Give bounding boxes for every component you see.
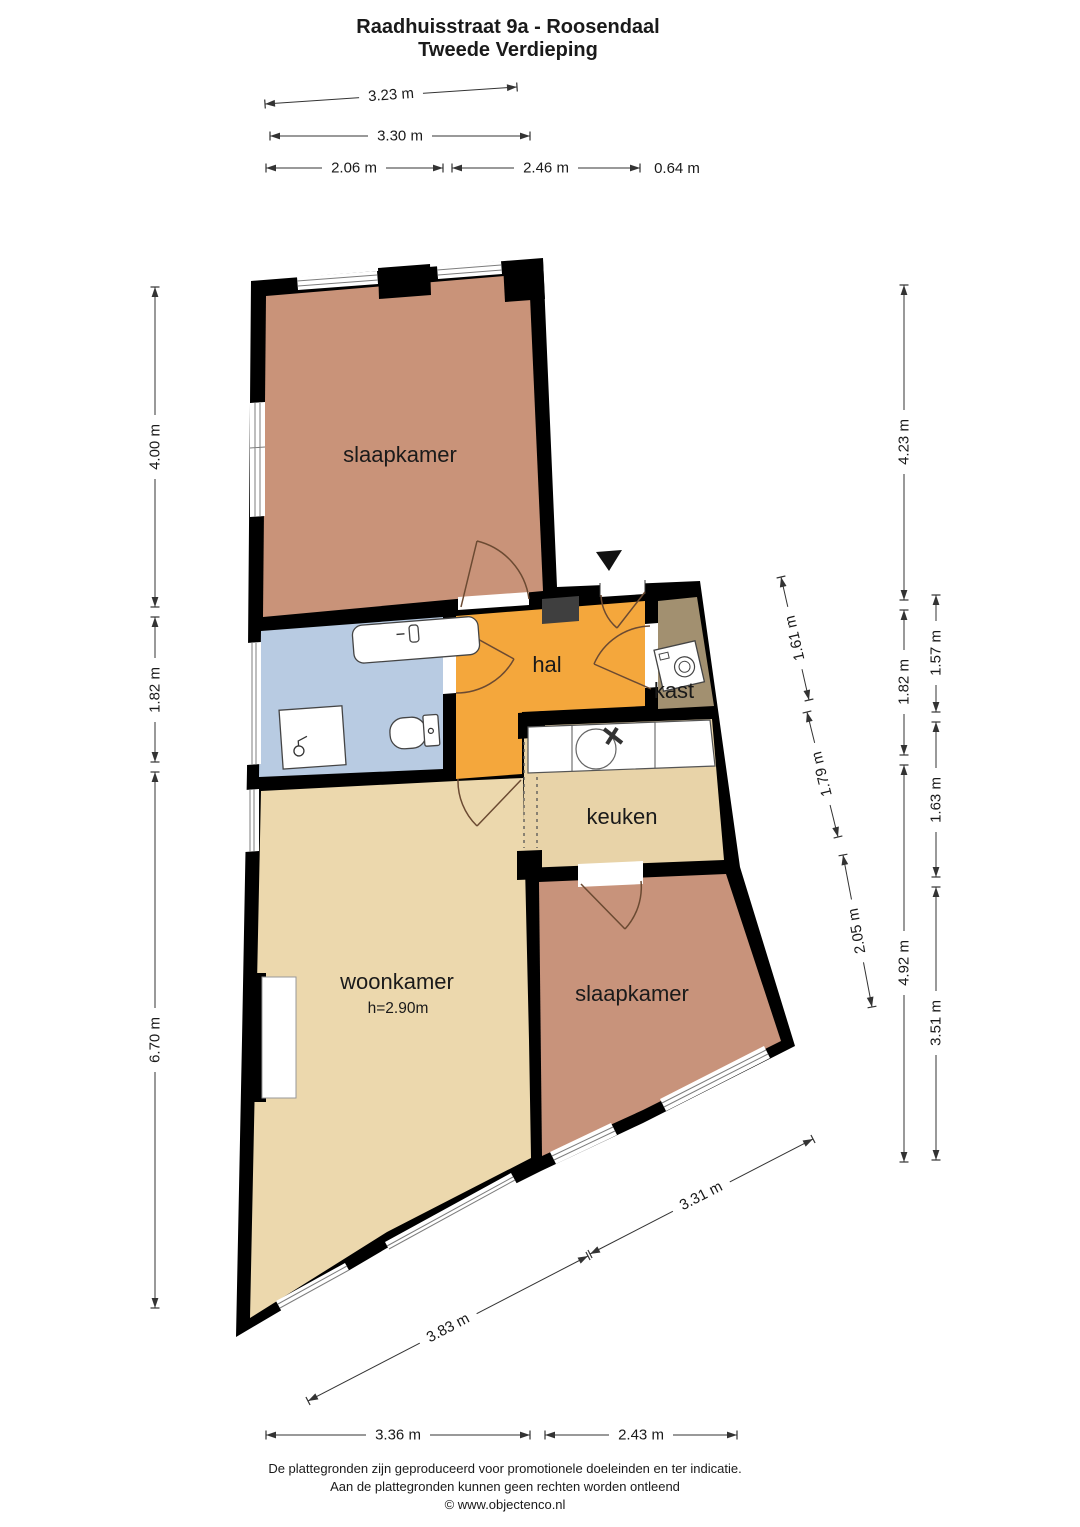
window-left-bedroom (250, 402, 265, 517)
entrance-arrow-icon (596, 550, 622, 571)
dim-top-4: 2.46 m (523, 160, 569, 177)
dim-top-1: 3.23 m (368, 85, 415, 105)
page-title-line2: Tweede Verdieping (418, 39, 598, 61)
dim-right-inner-3: 2.05 m (845, 907, 870, 955)
shower-fixture (279, 706, 346, 769)
label-keuken: keuken (587, 804, 658, 829)
wall-stub-keuken-bottom (517, 850, 542, 880)
footer-disclaimer-line2: Aan de plattegronden kunnen geen rechten… (330, 1479, 680, 1494)
dim-right-far-1: 1.57 m (928, 630, 945, 676)
dim-bottom-slanted-2: 3.31 m (677, 1178, 726, 1214)
label-slaapkamer-bottom: slaapkamer (575, 981, 689, 1006)
label-slaapkamer-top: slaapkamer (343, 442, 457, 467)
label-kast: kast (654, 678, 694, 703)
shaft (542, 596, 579, 624)
wall-pier-top-middle (378, 264, 431, 299)
niche-recess (262, 977, 296, 1098)
dim-right-far-3: 3.51 m (928, 1000, 945, 1046)
window-left-badkamer (247, 642, 261, 765)
dim-top-2: 3.30 m (377, 128, 423, 145)
dim-right-outer-3: 4.92 m (896, 940, 913, 986)
dim-right-outer-2: 1.82 m (896, 659, 913, 705)
dim-right-far-2: 1.63 m (928, 777, 945, 823)
dim-bottom-2: 2.43 m (618, 1427, 664, 1444)
footer-disclaimer-line1: De plattegronden zijn geproduceerd voor … (268, 1461, 741, 1476)
dim-left-3: 6.70 m (147, 1017, 164, 1063)
dim-bottom-1: 3.36 m (375, 1427, 421, 1444)
kitchen-counter (528, 720, 715, 773)
floorplan-canvas: Raadhuisstraat 9a - Roosendaal Tweede Ve… (0, 0, 1080, 1527)
dim-bottom-slanted-1: 3.83 m (424, 1310, 473, 1346)
dim-top-5: 0.64 m (654, 160, 700, 177)
label-woonkamer: woonkamer (339, 969, 454, 994)
window-left-woonkamer (245, 789, 259, 852)
label-woonkamer-height: h=2.90m (368, 1000, 429, 1017)
dim-left-2: 1.82 m (147, 667, 164, 713)
footer-copyright: © www.objectenco.nl (445, 1497, 566, 1512)
floorplan-page: Raadhuisstraat 9a - Roosendaal Tweede Ve… (0, 0, 1080, 1527)
opening-keuken-slaapkamer (578, 861, 643, 887)
dim-top-3: 2.06 m (331, 160, 377, 177)
dim-left-1: 4.00 m (147, 424, 164, 470)
wall-pier-top-right (503, 261, 545, 302)
label-hal: hal (532, 652, 561, 677)
dim-right-outer-1: 4.23 m (896, 419, 913, 465)
dim-right-inner-2: 1.79 m (808, 750, 836, 799)
dim-right-inner-1: 1.61 m (782, 614, 809, 663)
toilet-fixture (389, 714, 440, 749)
page-title-line1: Raadhuisstraat 9a - Roosendaal (356, 16, 659, 38)
